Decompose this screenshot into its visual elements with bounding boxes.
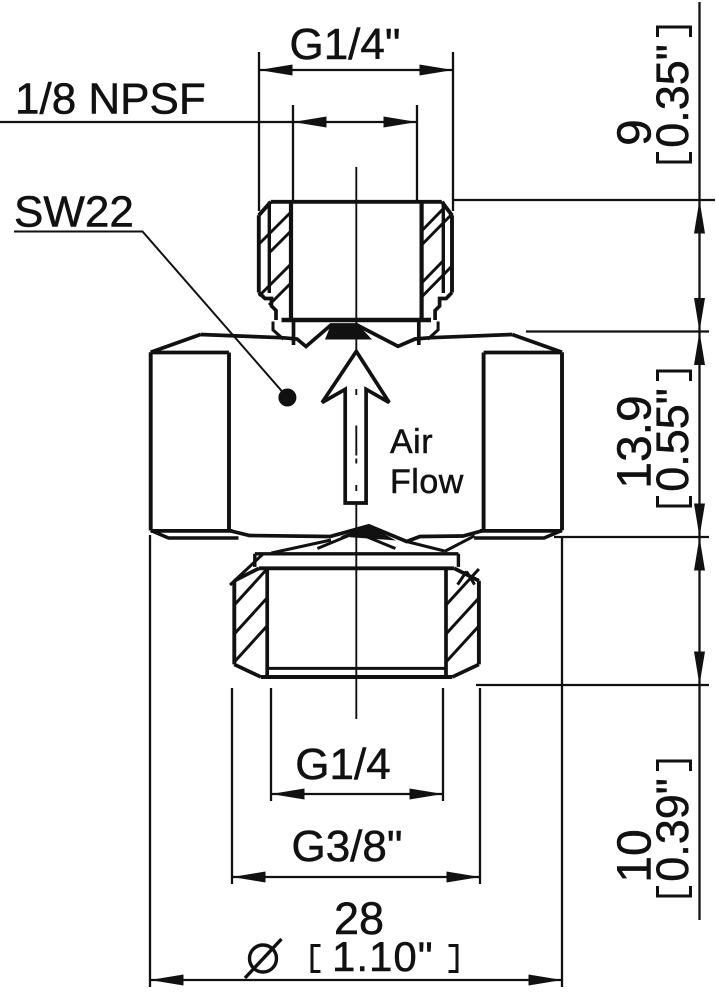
svg-text:1/8 NPSF: 1/8 NPSF [15, 75, 206, 124]
svg-text:SW22: SW22 [14, 188, 134, 237]
svg-text:Air: Air [390, 423, 433, 461]
svg-text:0.39": 0.39" [647, 778, 698, 882]
svg-text:G3/8": G3/8" [291, 822, 402, 871]
svg-text:Flow: Flow [390, 463, 464, 501]
svg-text:G1/4": G1/4" [289, 20, 400, 69]
svg-text:1.10": 1.10" [332, 933, 434, 980]
svg-text:0.55": 0.55" [647, 388, 698, 492]
svg-text:0.35": 0.35" [647, 44, 698, 148]
svg-text:G1/4: G1/4 [295, 740, 390, 789]
